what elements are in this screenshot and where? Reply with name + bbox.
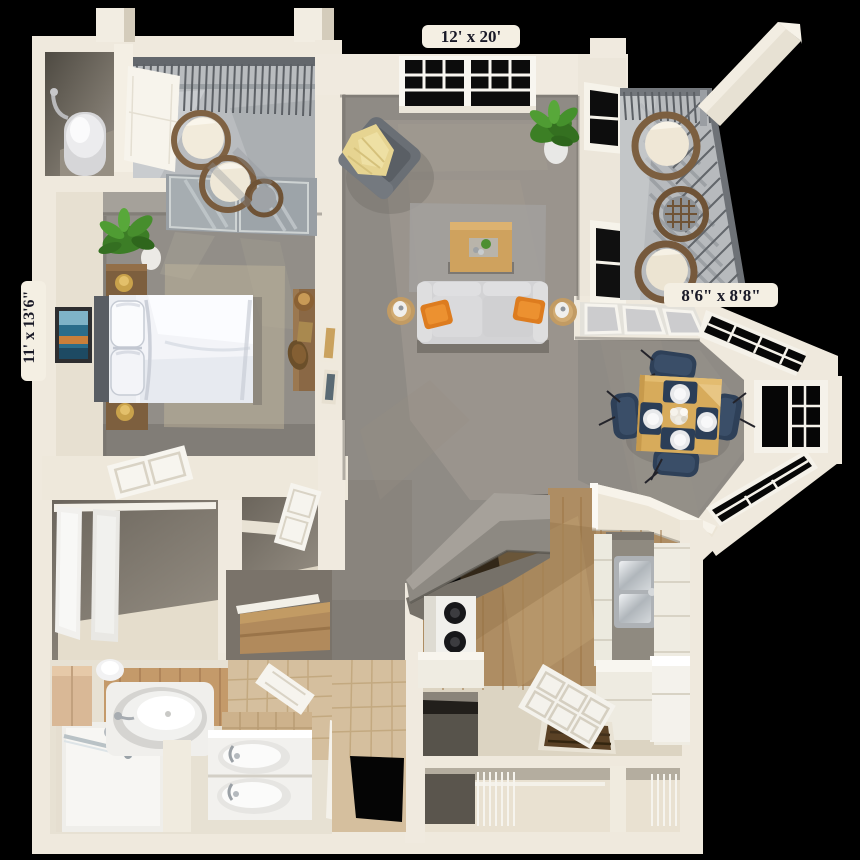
- svg-text:11' x 13'6": 11' x 13'6": [21, 291, 38, 364]
- svg-text:12' x 20': 12' x 20': [441, 27, 501, 46]
- svg-text:8'6" x 8'8": 8'6" x 8'8": [681, 286, 760, 305]
